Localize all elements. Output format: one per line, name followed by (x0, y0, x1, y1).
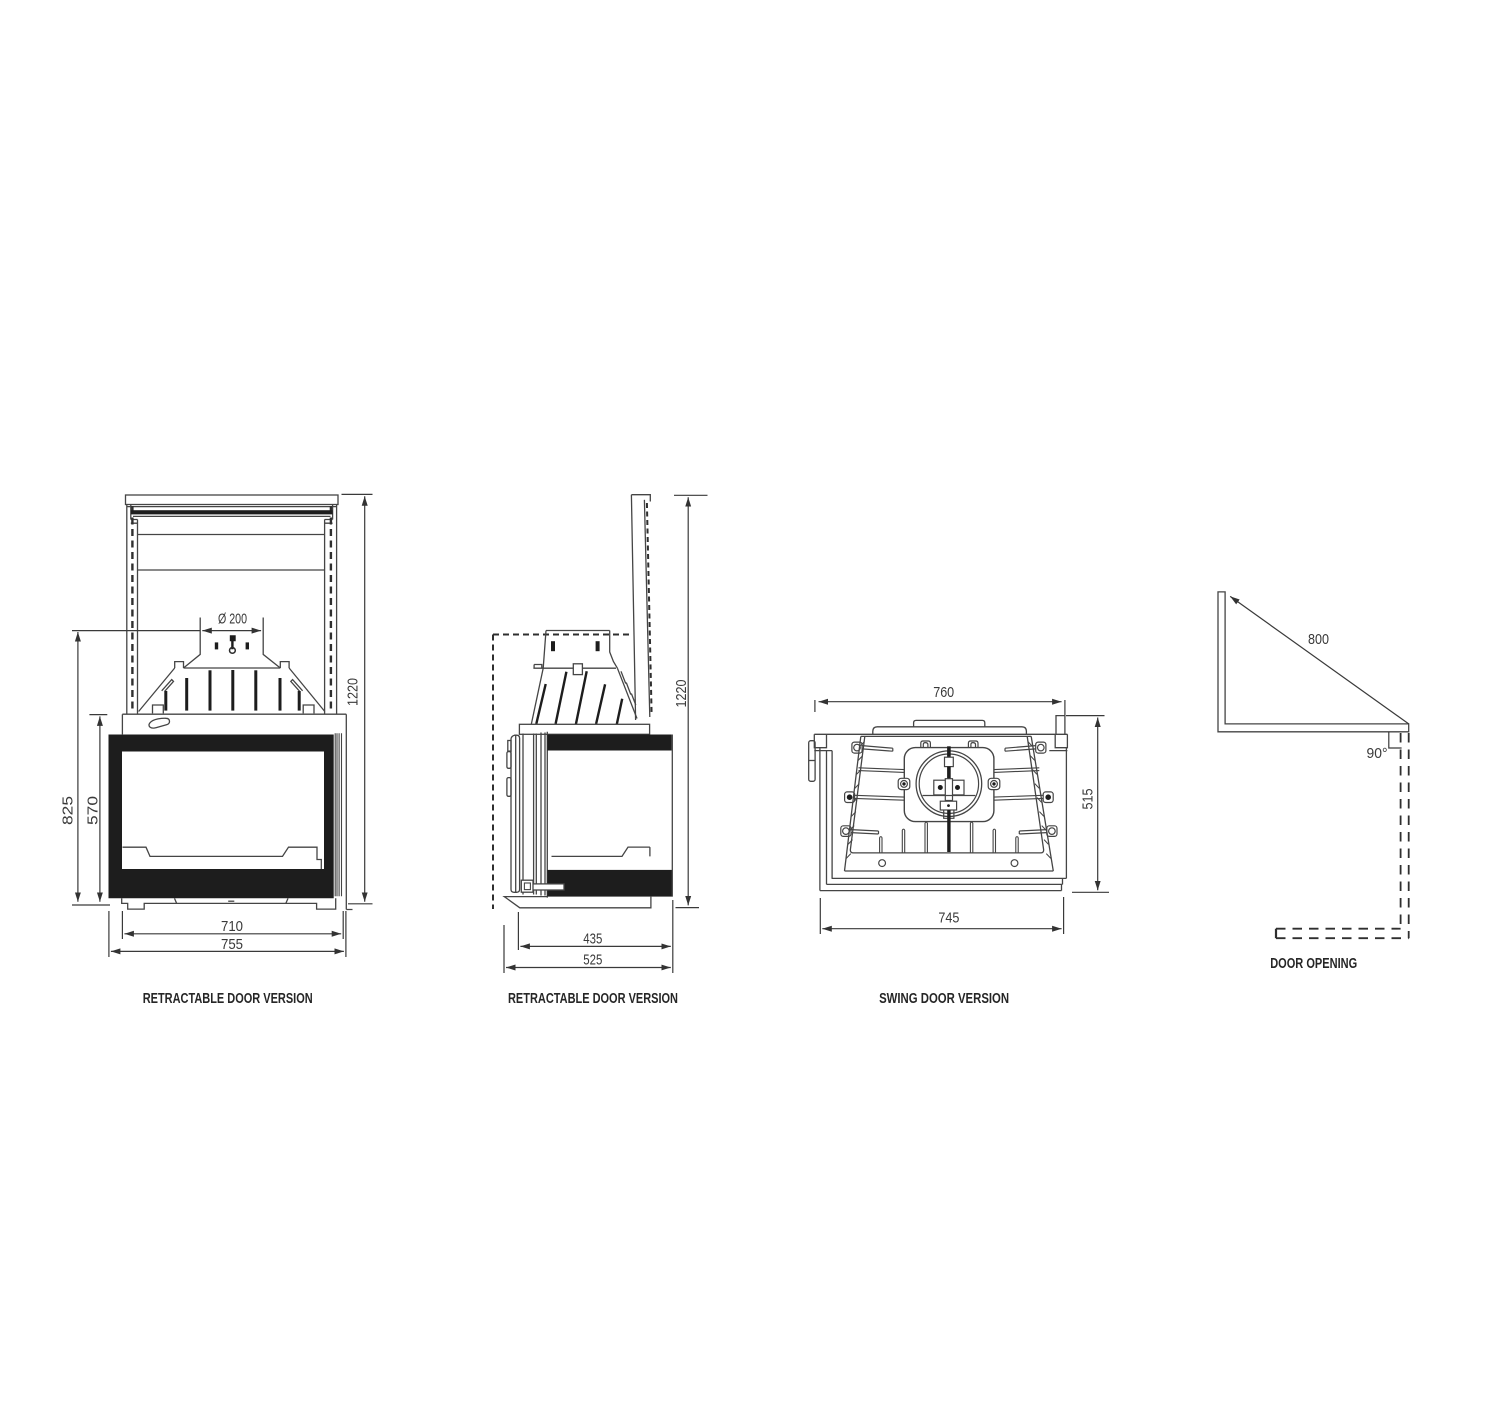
svg-text:525: 525 (583, 952, 602, 969)
svg-text:800: 800 (1308, 631, 1329, 648)
svg-text:SWING DOOR VERSION: SWING DOOR VERSION (879, 991, 1009, 1007)
svg-text:755: 755 (221, 936, 243, 953)
svg-text:DOOR OPENING: DOOR OPENING (1270, 956, 1357, 972)
svg-text:745: 745 (938, 910, 959, 927)
svg-text:710: 710 (221, 918, 243, 935)
svg-text:760: 760 (933, 684, 954, 701)
svg-text:1220: 1220 (673, 680, 690, 708)
svg-text:RETRACTABLE DOOR VERSION: RETRACTABLE DOOR VERSION (508, 991, 678, 1007)
svg-text:RETRACTABLE DOOR VERSION: RETRACTABLE DOOR VERSION (143, 991, 313, 1007)
svg-text:90°: 90° (1367, 745, 1388, 762)
svg-text:Ø 200: Ø 200 (218, 611, 247, 628)
svg-text:435: 435 (583, 931, 602, 948)
svg-text:570: 570 (85, 796, 102, 825)
svg-text:825: 825 (60, 796, 77, 825)
svg-text:1220: 1220 (345, 678, 362, 706)
svg-text:515: 515 (1080, 789, 1097, 810)
